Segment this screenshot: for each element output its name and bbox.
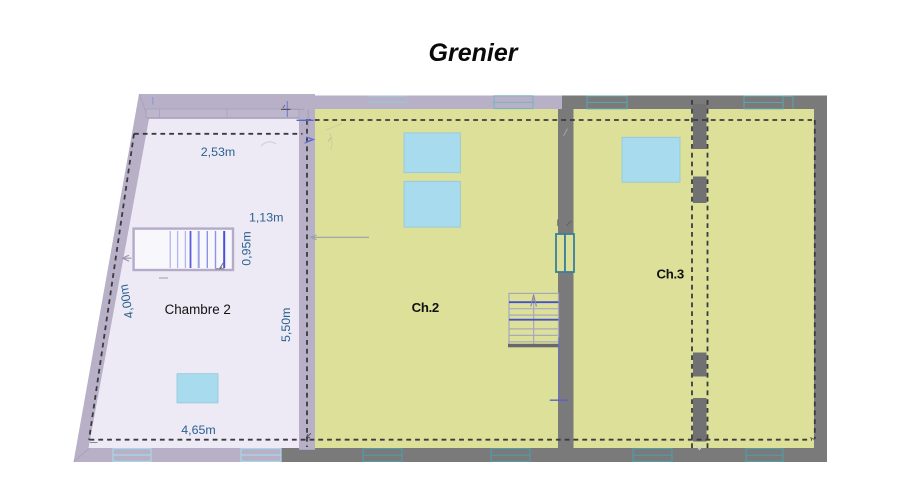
svg-text:Ch.2: Ch.2: [412, 300, 439, 315]
svg-text:2,53m: 2,53m: [201, 145, 235, 159]
svg-text:4,65m: 4,65m: [181, 423, 215, 437]
svg-text:Grenier: Grenier: [429, 39, 519, 67]
svg-text:Chambre 2: Chambre 2: [165, 302, 231, 317]
svg-text:5,50m: 5,50m: [279, 308, 293, 342]
svg-text:Ch.3: Ch.3: [657, 267, 684, 282]
svg-text:0,95m: 0,95m: [240, 231, 254, 265]
svg-text:1,13m: 1,13m: [249, 211, 283, 225]
